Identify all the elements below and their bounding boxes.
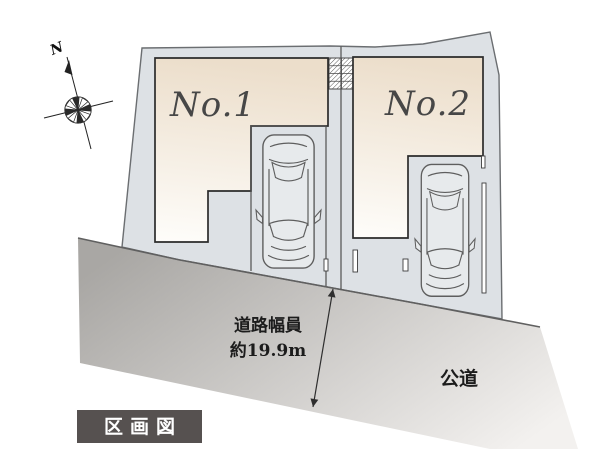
wall-segment	[403, 259, 408, 271]
wall-segment	[482, 156, 486, 168]
compass-north-label: N	[47, 39, 67, 59]
wall-segment	[353, 250, 358, 272]
site-plan-canvas: No.1 No.2 N 道路幅員 約19.9m 公道 区画図	[0, 0, 600, 449]
car-icon-lot2	[415, 164, 475, 296]
compass-icon: N	[44, 39, 113, 149]
wall-segment	[324, 259, 328, 271]
road-width-caption-line1: 道路幅員	[234, 315, 302, 336]
lot2-bay-wall	[482, 183, 486, 293]
car-icon-lot1	[256, 135, 321, 268]
lot1-label: No.1	[169, 85, 256, 125]
lot2-label: No.2	[384, 84, 471, 124]
legend-badge-label: 区画図	[104, 416, 182, 438]
legend-badge: 区画図	[77, 410, 202, 443]
road-width-caption-line2: 約19.9m	[230, 340, 306, 361]
road-name-label: 公道	[440, 367, 478, 390]
plot-map-figure: No.1 No.2 N 道路幅員 約19.9m 公道 区画図	[0, 0, 600, 449]
